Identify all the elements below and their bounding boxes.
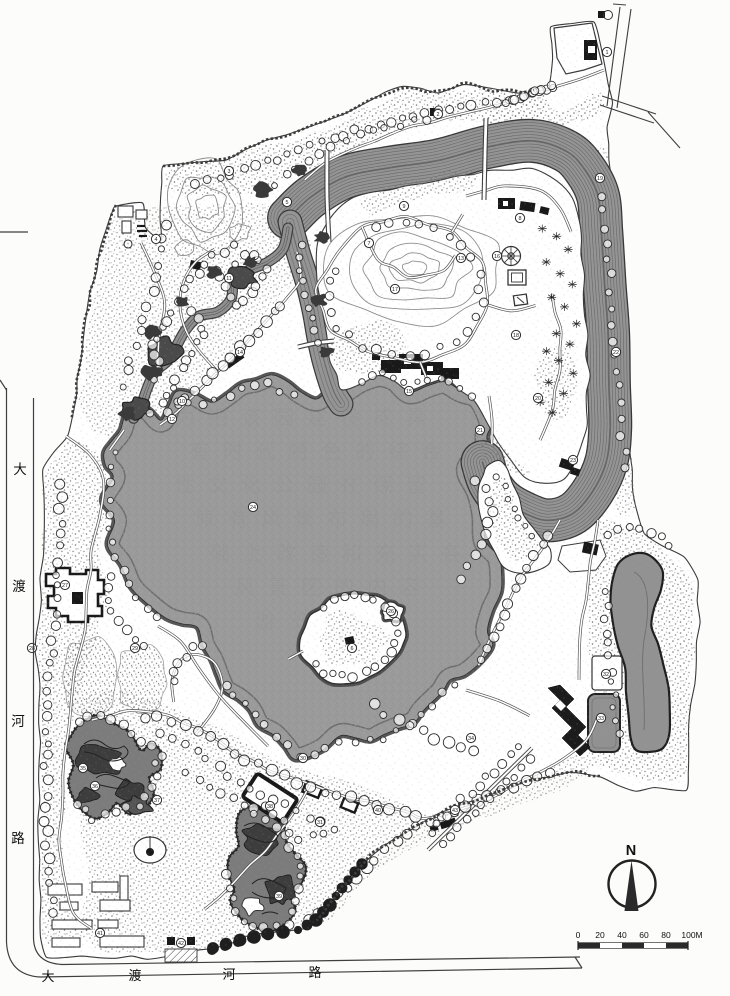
svg-text:40: 40	[617, 930, 627, 940]
svg-text:渡: 渡	[12, 579, 26, 594]
svg-text:4: 4	[155, 237, 158, 243]
svg-text:29: 29	[132, 646, 138, 652]
svg-text:河: 河	[11, 714, 25, 729]
svg-text:路: 路	[308, 965, 321, 980]
svg-text:35: 35	[80, 766, 86, 772]
svg-text:24: 24	[250, 505, 256, 511]
svg-text:1: 1	[606, 50, 609, 56]
svg-text:27: 27	[62, 583, 68, 589]
svg-text:26: 26	[388, 609, 394, 615]
svg-text:3: 3	[228, 169, 231, 175]
svg-text:大: 大	[41, 969, 54, 984]
svg-text:13: 13	[458, 256, 464, 262]
svg-text:41: 41	[97, 931, 103, 937]
svg-text:23: 23	[570, 458, 576, 464]
svg-text:19: 19	[597, 176, 603, 182]
svg-text:20: 20	[535, 396, 541, 402]
svg-text:5: 5	[286, 200, 289, 206]
svg-text:16: 16	[494, 254, 500, 260]
svg-text:39: 39	[276, 894, 282, 900]
svg-text:河: 河	[222, 967, 235, 982]
svg-text:7: 7	[368, 241, 371, 247]
svg-text:31: 31	[317, 820, 323, 826]
svg-text:100M: 100M	[681, 930, 702, 940]
svg-text:15: 15	[406, 389, 412, 395]
svg-text:30: 30	[300, 756, 306, 762]
svg-text:路: 路	[11, 831, 25, 846]
svg-text:80: 80	[661, 930, 671, 940]
svg-text:9: 9	[403, 204, 406, 210]
svg-text:8: 8	[519, 216, 522, 222]
svg-text:42: 42	[178, 941, 184, 947]
svg-text:37: 37	[154, 798, 160, 804]
svg-text:大: 大	[13, 462, 27, 477]
svg-text:38: 38	[267, 804, 273, 810]
svg-text:22: 22	[613, 350, 619, 356]
svg-text:18: 18	[513, 333, 519, 339]
svg-text:14: 14	[237, 350, 243, 356]
svg-text:43: 43	[452, 808, 458, 814]
svg-text:N: N	[626, 843, 636, 859]
svg-text:21: 21	[477, 428, 483, 434]
svg-text:20: 20	[595, 930, 605, 940]
svg-text:33: 33	[598, 716, 604, 722]
svg-text:渡: 渡	[128, 968, 141, 983]
svg-text:60: 60	[639, 930, 649, 940]
svg-text:0: 0	[576, 930, 581, 940]
svg-text:2: 2	[437, 112, 440, 118]
svg-text:36: 36	[92, 784, 98, 790]
svg-text:6: 6	[351, 646, 354, 652]
svg-text:12: 12	[169, 417, 175, 423]
svg-text:40: 40	[375, 808, 381, 814]
svg-text:17: 17	[392, 287, 398, 293]
svg-text:32: 32	[603, 672, 609, 678]
svg-text:11: 11	[226, 276, 232, 282]
svg-text:34: 34	[468, 736, 474, 742]
svg-text:10: 10	[179, 399, 185, 405]
